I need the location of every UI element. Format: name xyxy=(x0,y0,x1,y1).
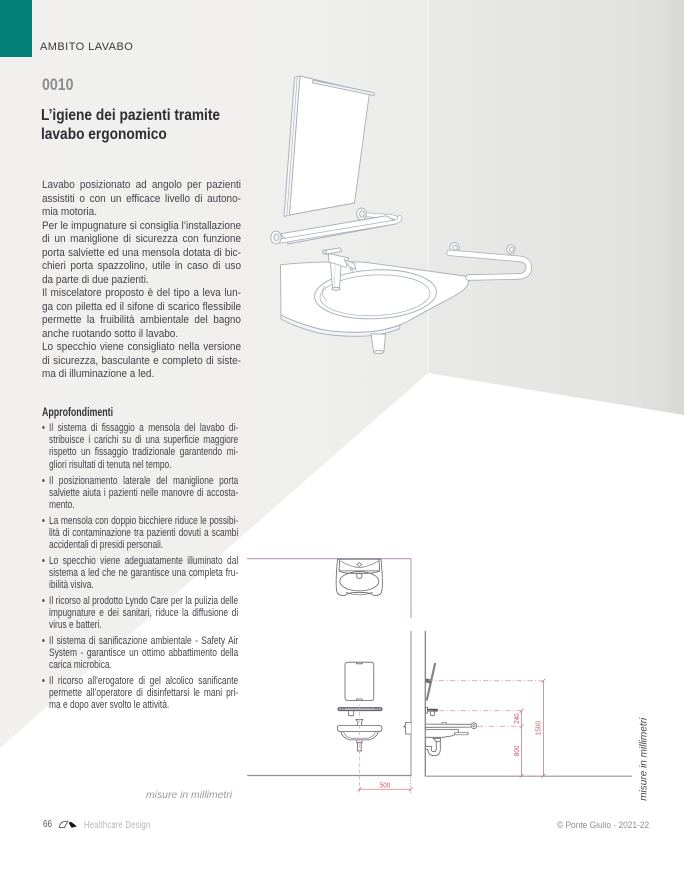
svg-text:800: 800 xyxy=(512,746,521,757)
svg-text:misure in millimetri: misure in millimetri xyxy=(638,717,650,801)
svg-text:500: 500 xyxy=(380,781,391,790)
svg-text:240: 240 xyxy=(512,713,521,724)
svg-text:1500: 1500 xyxy=(534,721,543,735)
